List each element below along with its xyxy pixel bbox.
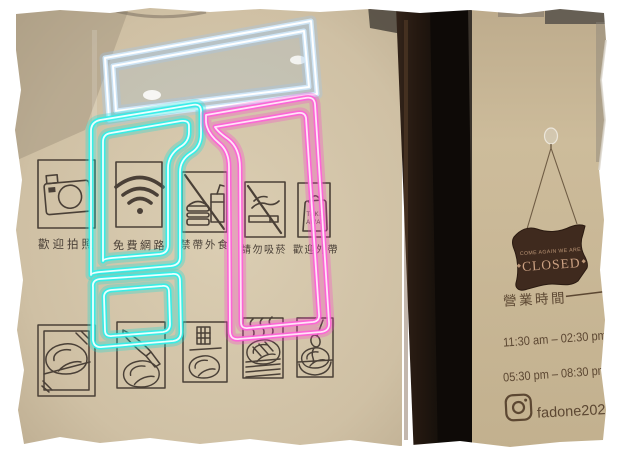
suction-cup bbox=[545, 128, 558, 144]
storefront-photo: TAKE AWAY 歡迎拍照 免費網路 禁帶外食 請勿吸菸 歡迎外帶 bbox=[0, 0, 620, 465]
light-reflection bbox=[143, 90, 161, 100]
label-no-smoking: 請勿吸菸 bbox=[241, 243, 287, 256]
label-no-outside-food: 禁帶外食 bbox=[180, 238, 230, 251]
